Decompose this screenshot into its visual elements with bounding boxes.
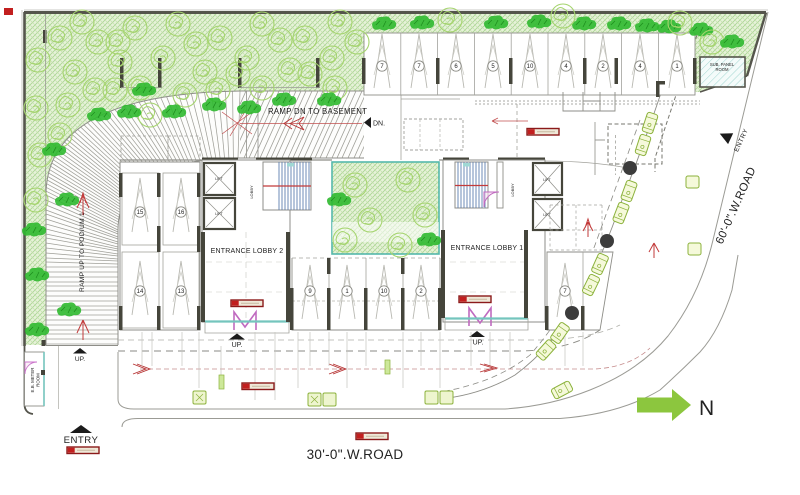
svg-text:UP.: UP.: [473, 340, 484, 347]
svg-text:ENTRANCE LOBBY 1: ENTRANCE LOBBY 1: [451, 245, 524, 252]
svg-text:UP.: UP.: [75, 356, 85, 363]
svg-text:ROOM: ROOM: [36, 373, 41, 387]
svg-text:30'-0".W.ROAD: 30'-0".W.ROAD: [307, 447, 404, 462]
svg-text:14: 14: [137, 289, 144, 295]
svg-text:LIFT: LIFT: [215, 177, 223, 181]
svg-text:RAMP DN TO BASEMENT: RAMP DN TO BASEMENT: [268, 107, 367, 116]
svg-text:ROOM: ROOM: [715, 67, 729, 72]
svg-text:UP.: UP.: [232, 342, 243, 349]
svg-text:13: 13: [178, 289, 185, 295]
svg-text:ENTRANCE LOBBY 2: ENTRANCE LOBBY 2: [211, 248, 284, 255]
svg-text:15: 15: [137, 210, 144, 216]
svg-text:10: 10: [381, 289, 388, 295]
svg-text:ENTRY: ENTRY: [64, 435, 99, 446]
svg-text:N: N: [699, 397, 714, 420]
svg-text:10: 10: [527, 64, 534, 70]
svg-text:DN.: DN.: [373, 121, 385, 128]
svg-text:RAMP UP TO PODIUM 1: RAMP UP TO PODIUM 1: [79, 212, 86, 292]
svg-text:LOBBY: LOBBY: [249, 185, 254, 199]
svg-text:16: 16: [178, 210, 185, 216]
svg-text:E.B. METER: E.B. METER: [30, 368, 35, 393]
svg-text:LIFT: LIFT: [215, 212, 223, 216]
svg-text:LOBBY: LOBBY: [510, 183, 515, 197]
svg-text:LIFT: LIFT: [543, 178, 551, 182]
